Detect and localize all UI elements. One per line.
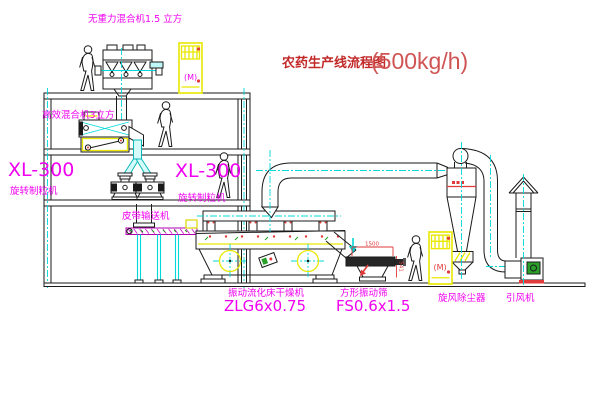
ground-line	[44, 283, 585, 287]
label-fan: 引风机	[506, 292, 535, 304]
label-mixer2: 高效混合机3立方	[42, 109, 115, 121]
rotary-granulator-right	[136, 173, 164, 200]
dim-screen-height: 541	[398, 261, 404, 272]
drawing-capacity: (500kg/h)	[371, 48, 468, 74]
dim-screen-width: 1500	[365, 242, 379, 248]
induced-draft-fan	[505, 258, 544, 284]
worker-figure-4	[408, 236, 423, 281]
rotary-granulator-left	[111, 173, 139, 200]
dryer-motor	[259, 253, 277, 268]
vibrating-fluid-bed-dryer	[186, 211, 357, 283]
drawing-canvas: (M)	[0, 0, 600, 403]
label-belt-conveyor: 皮带输送机	[122, 210, 170, 222]
label-cyclone: 旋风除尘器	[438, 292, 486, 304]
cyclone-to-fan-duct	[484, 155, 512, 272]
label-dryer-model: ZLG6x0.75	[224, 297, 306, 315]
label-granulator-left-name: 旋转制粒机	[10, 185, 58, 197]
label-granulator-left-model: XL-300	[8, 159, 74, 181]
label-granulator-right-model: XL-300	[175, 160, 241, 182]
control-cabinet-top: (M)	[179, 43, 202, 93]
label-screen-model: FS0.6x1.5	[336, 297, 410, 315]
cabinet-motor-symbol-2: (M)	[434, 263, 447, 272]
cabinet-motor-symbol: (M)	[184, 73, 197, 82]
worker-figure-1	[80, 46, 95, 91]
label-top-mixer: 无重力混合机1.5 立方	[88, 13, 182, 25]
belt-conveyor	[126, 228, 197, 283]
worker-figure-2	[158, 102, 173, 147]
label-granulator-right-name: 旋转制粒机	[178, 192, 226, 204]
cad-process-flow-drawing: (M)	[0, 0, 600, 403]
control-cabinet-right: (M)	[429, 232, 452, 284]
cyclone-separator	[447, 142, 498, 280]
square-vibrating-screen	[346, 247, 406, 281]
cyclone-model-marks	[452, 181, 464, 184]
